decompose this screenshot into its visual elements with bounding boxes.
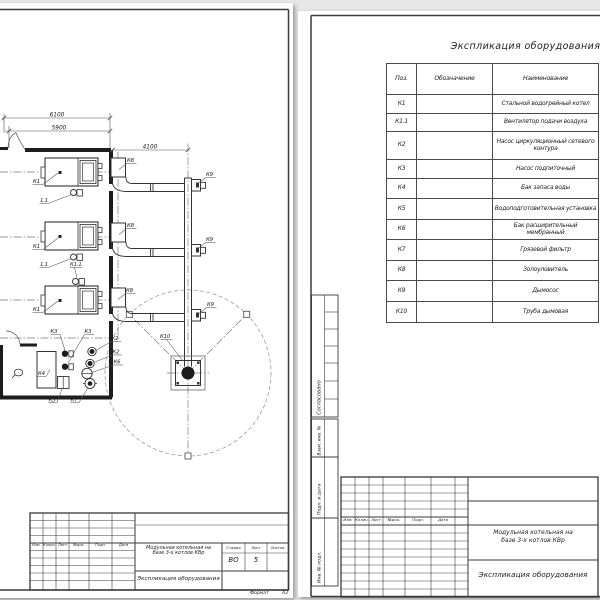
- cell-designation: [417, 281, 493, 302]
- cell-designation: [417, 302, 493, 323]
- cell-name: Вентилятор подачи воздуха: [493, 114, 599, 132]
- table-row: К3 Насос подпиточный: [387, 160, 599, 179]
- revision-col-data: Дата: [431, 518, 455, 522]
- cell-pos: К8: [387, 261, 417, 281]
- revision-col-kolich: Колич.: [355, 518, 369, 522]
- cell-pos: К1: [387, 95, 417, 114]
- table-row: К7 Грязевой фильтр: [387, 240, 599, 261]
- equipment-table: Поз. Обозначение Наименование К1 Стально…: [386, 63, 599, 323]
- table-row: К4 Бак запаса воды: [387, 179, 599, 199]
- table-row: К9 Дымосос: [387, 281, 599, 302]
- cell-designation: [417, 261, 493, 281]
- revision-col-list: Лист: [56, 544, 69, 548]
- cell-designation: [417, 199, 493, 220]
- table-row: К1.1 Вентилятор подачи воздуха: [387, 114, 599, 132]
- cell-pos: К6: [387, 220, 417, 240]
- drawing-viewer-background: Экспликация оборудования Поз. Обозначени…: [0, 0, 600, 600]
- document-name: Экспликация оборудования: [135, 576, 222, 582]
- cell-name: Водоподготовительная установка: [493, 199, 599, 220]
- cell-name: Бак расширительный мембранный: [493, 220, 599, 240]
- sheets-header: Листов: [267, 546, 288, 550]
- sheet-header: Лист: [245, 546, 267, 550]
- revision-col-list: Лист: [369, 518, 383, 522]
- table-row: К2 Насос циркуляционный сетевого контура: [387, 132, 599, 160]
- col-header-designation: Обозначение: [417, 64, 493, 95]
- table-row: К5 Водоподготовительная установка: [387, 199, 599, 220]
- cell-name: Насос подпиточный: [493, 160, 599, 179]
- col-header-pos: Поз.: [387, 64, 417, 95]
- cell-pos: К7: [387, 240, 417, 261]
- revision-col-izm: Изм.: [341, 518, 355, 522]
- cell-designation: [417, 114, 493, 132]
- table-row: К10 Труба дымовая: [387, 302, 599, 323]
- stage-value: ВО: [222, 557, 245, 565]
- cell-pos: К9: [387, 281, 417, 302]
- cell-name: Труба дымовая: [493, 302, 599, 323]
- table-header-row: Поз. Обозначение Наименование: [387, 64, 599, 95]
- revision-col-izm: Изм.: [30, 544, 43, 548]
- project-title: Модульная котельная на базе 3-х котлов К…: [135, 546, 222, 557]
- cell-designation: [417, 132, 493, 160]
- cell-pos: К5: [387, 199, 417, 220]
- revision-col-ndok: №док.: [383, 518, 405, 522]
- cell-name: Грязевой фильтр: [493, 240, 599, 261]
- sheet-number: 5: [245, 557, 267, 565]
- revision-col-ndok: №док.: [69, 544, 89, 548]
- col-header-name: Наименование: [493, 64, 599, 95]
- table-row: К1 Стальной водогрейный котел: [387, 95, 599, 114]
- cell-pos: К4: [387, 179, 417, 199]
- revision-col-podp: Подп.: [405, 518, 431, 522]
- stage-header: Стадия: [222, 546, 245, 550]
- cell-name: Золоуловитель: [493, 261, 599, 281]
- cell-designation: [417, 95, 493, 114]
- revision-col-podp: Подп.: [89, 544, 112, 548]
- project-title: Модульная котельная на базе 3-х котлов К…: [468, 529, 598, 545]
- cell-name: Дымосос: [493, 281, 599, 302]
- cell-pos: К1.1: [387, 114, 417, 132]
- cell-designation: [417, 220, 493, 240]
- revision-col-data: Дата: [112, 544, 135, 548]
- table-row: К8 Золоуловитель: [387, 261, 599, 281]
- table-row: К6 Бак расширительный мембранный: [387, 220, 599, 240]
- project-title-line2: базе 3-х котлов КВр: [468, 537, 598, 545]
- cell-name: Стальной водогрейный котел: [493, 95, 599, 114]
- project-title-line1: Модульная котельная на: [468, 529, 598, 537]
- cell-pos: К10: [387, 302, 417, 323]
- document-name: Экспликация оборудования: [468, 571, 598, 579]
- cell-pos: К3: [387, 160, 417, 179]
- equipment-table-title: Экспликация оборудования: [433, 41, 600, 52]
- revision-col-kolich: Колич.: [43, 544, 56, 548]
- format-value: А3: [282, 591, 288, 596]
- format-label: Формат: [250, 591, 269, 596]
- cell-designation: [417, 240, 493, 261]
- cell-designation: [417, 160, 493, 179]
- cell-name: Насос циркуляционный сетевого контура: [493, 132, 599, 160]
- cell-name: Бак запаса воды: [493, 179, 599, 199]
- project-title-line2: базе 3-х котлов КВр: [135, 551, 222, 556]
- sheet-plan-page: [0, 3, 293, 598]
- cell-pos: К2: [387, 132, 417, 160]
- cell-designation: [417, 179, 493, 199]
- format-note: Формат А3: [250, 591, 288, 596]
